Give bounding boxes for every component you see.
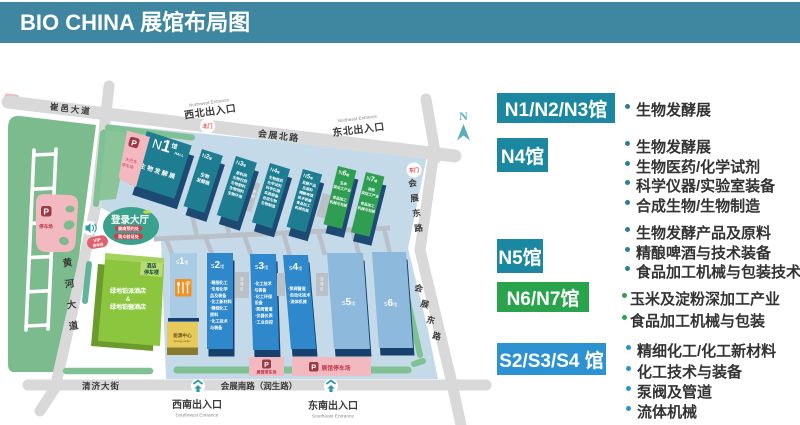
svg-text:登录大厅: 登录大厅 — [110, 214, 150, 226]
svg-text:·精细化工: ·精细化工 — [210, 305, 228, 311]
svg-text:清济大街: 清济大街 — [82, 381, 120, 391]
svg-text:东门: 东门 — [409, 167, 419, 174]
svg-text:Northeast Entrance: Northeast Entrance — [337, 114, 377, 124]
svg-text:·仪器仪表: ·仪器仪表 — [255, 312, 274, 318]
svg-text:&: & — [126, 297, 131, 303]
svg-text:N: N — [459, 109, 468, 123]
svg-text:与装备: 与装备 — [210, 324, 223, 330]
svg-text:·流体机械: ·流体机械 — [289, 298, 308, 304]
svg-text:东南出入口: 东南出入口 — [308, 399, 358, 412]
svg-text:展馆停车场: 展馆停车场 — [322, 364, 351, 372]
svg-text:·精细化工: ·精细化工 — [210, 279, 228, 285]
svg-text:原料: 原料 — [210, 311, 219, 317]
svg-text:展: 展 — [409, 192, 420, 203]
svg-text:Southeast Entrance: Southeast Entrance — [312, 414, 354, 420]
svg-text:停车场: 停车场 — [39, 223, 53, 230]
svg-text:Energy center: Energy center — [174, 339, 190, 343]
svg-text:绿地铂派酒店: 绿地铂派酒店 — [110, 287, 146, 295]
svg-text:设备: 设备 — [255, 299, 264, 305]
svg-text:·工业自控: ·工业自控 — [255, 318, 274, 324]
svg-text:会: 会 — [407, 177, 418, 188]
svg-text:P: P — [311, 363, 316, 372]
svg-text:观众验证处: 观众验证处 — [118, 233, 140, 240]
svg-text:品及装备: 品及装备 — [210, 292, 227, 298]
svg-text:·化工环保: ·化工环保 — [254, 293, 273, 299]
svg-text:道: 道 — [68, 319, 80, 332]
svg-text:·化工技术: ·化工技术 — [210, 317, 229, 323]
svg-text:·化工技术: ·化工技术 — [254, 280, 273, 286]
svg-text:绿地铂骊酒店: 绿地铂骊酒店 — [110, 303, 146, 311]
svg-text:停车楼: 停车楼 — [144, 269, 159, 276]
svg-text:·自动化技术: ·自动化技术 — [289, 291, 312, 297]
svg-text:能源中心: 能源中心 — [173, 332, 192, 339]
svg-text:会展南路（润生路）: 会展南路（润生路） — [220, 381, 298, 391]
svg-text:展商预约处: 展商预约处 — [118, 225, 140, 232]
svg-text:P: P — [264, 362, 269, 369]
svg-text:西南出入口: 西南出入口 — [172, 398, 222, 411]
svg-text:酒店: 酒店 — [146, 263, 156, 270]
svg-text:·专用化学: ·专用化学 — [210, 285, 228, 291]
svg-text:展馆停车场: 展馆停车场 — [256, 369, 277, 375]
svg-text:北门: 北门 — [202, 123, 212, 130]
svg-text:·化工新材料: ·化工新材料 — [210, 298, 233, 304]
svg-text:Southwest Entrance: Southwest Entrance — [176, 413, 219, 419]
svg-text:与装备: 与装备 — [254, 286, 267, 292]
svg-text:P: P — [43, 206, 49, 216]
svg-text:·泵阀管道: ·泵阀管道 — [288, 285, 307, 291]
svg-text:·泵阀管道: ·泵阀管道 — [255, 306, 274, 312]
